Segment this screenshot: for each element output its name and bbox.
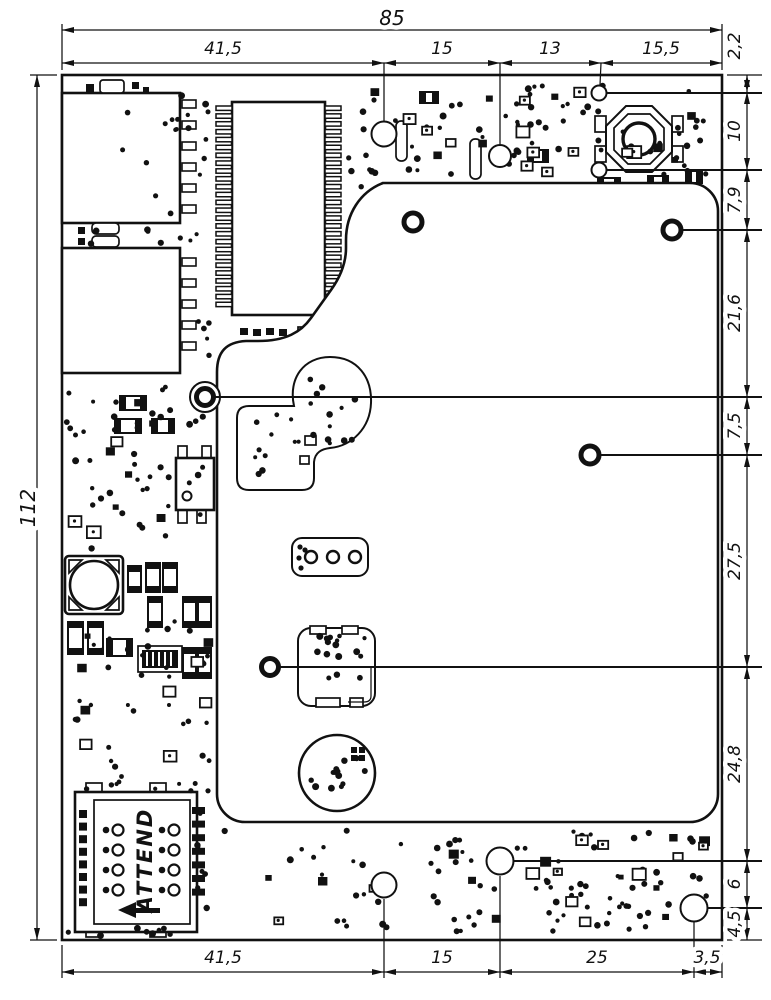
smd-pad: [662, 914, 669, 920]
passive-cap: [164, 586, 176, 591]
via-dot: [263, 453, 268, 458]
via-dot: [158, 464, 164, 470]
smd-pad: [113, 504, 119, 509]
via-dot: [326, 411, 333, 418]
smd-part: [526, 868, 539, 879]
via-dot: [289, 417, 293, 421]
via-dot: [135, 421, 140, 426]
passive-cap: [199, 649, 210, 654]
passive-cap: [542, 151, 547, 161]
dim-arrow: [744, 397, 750, 409]
ic-pin: [325, 255, 341, 259]
dim-arrow: [744, 849, 750, 861]
via-dot: [344, 828, 350, 834]
via-dot: [604, 921, 610, 927]
via-dot: [627, 927, 632, 932]
connector-pad: [182, 184, 196, 192]
via-dot: [193, 418, 199, 424]
passive-cap: [199, 598, 210, 603]
via-dot: [446, 841, 453, 848]
via-dot: [436, 868, 442, 874]
dim-right-24-8: 24,8: [725, 745, 745, 783]
via-dot: [257, 447, 262, 452]
via-dot: [665, 901, 672, 908]
dim-arrow: [62, 60, 74, 66]
via-dot: [107, 636, 111, 640]
via-dot: [696, 875, 703, 882]
smd-pad: [77, 664, 87, 673]
via-dot: [204, 137, 209, 142]
via-dot: [414, 155, 421, 162]
mounting-hole: [581, 446, 599, 464]
via-dot: [525, 85, 532, 92]
via-dot: [259, 467, 266, 474]
via-dot: [107, 490, 114, 497]
via-dot: [204, 905, 210, 911]
dim-arrow: [744, 455, 750, 467]
via-dot: [274, 412, 279, 417]
connector-pad: [182, 205, 196, 213]
via-dot: [658, 880, 663, 885]
via-dot: [324, 651, 331, 658]
passive-cap: [432, 93, 437, 102]
via-dot: [647, 149, 653, 155]
ic-pin: [216, 263, 232, 267]
ic-pin: [216, 153, 232, 157]
via-dot: [503, 114, 508, 119]
passive-cap: [199, 672, 210, 677]
via-dot: [344, 924, 349, 929]
ic-pin: [216, 287, 232, 291]
via-dot: [312, 783, 319, 790]
dim-left-total: 112: [16, 489, 40, 527]
via-dot: [308, 401, 313, 406]
smd-part: [633, 869, 646, 880]
via-dot: [201, 326, 207, 332]
via-dot: [546, 910, 552, 916]
hole: [372, 873, 397, 898]
passive-cap: [69, 623, 82, 628]
mounting-hole-ring: [197, 389, 214, 406]
passive-cap: [184, 649, 195, 654]
dim-arrow: [744, 218, 750, 230]
via-dot: [117, 780, 122, 785]
via-dot: [140, 653, 144, 657]
via-dot: [178, 235, 183, 240]
via-dot: [149, 410, 155, 416]
smd-pad: [551, 94, 558, 100]
via-dot: [569, 886, 574, 891]
via-dot: [476, 126, 483, 133]
sim-pin: [192, 834, 205, 841]
ic-pin: [216, 192, 232, 196]
via-dot: [144, 929, 150, 935]
sim-pin: [79, 810, 87, 818]
via-dot: [585, 905, 590, 910]
via-dot: [98, 495, 104, 501]
ic-pin: [216, 279, 232, 283]
via-dot: [661, 172, 666, 177]
inductor: [65, 556, 123, 614]
via-dot: [148, 474, 153, 479]
via-dot: [540, 84, 545, 89]
via-dot: [207, 758, 212, 763]
via-dot: [308, 377, 314, 383]
via-dot: [438, 126, 442, 130]
sim-dot: [159, 827, 166, 834]
via-dot: [682, 163, 687, 168]
via-dot: [623, 903, 629, 909]
via-dot: [297, 440, 301, 444]
via-dot: [170, 117, 175, 122]
via-dot: [703, 171, 708, 176]
via-dot: [109, 782, 114, 787]
connector-a: [62, 93, 180, 223]
via-dot: [99, 648, 104, 653]
dim-arrow: [744, 861, 750, 873]
hole: [489, 145, 511, 167]
dim-arrow: [34, 75, 40, 87]
via-dot: [311, 855, 316, 860]
ic-pin: [325, 185, 341, 189]
via-dot: [198, 811, 203, 816]
via-dot: [434, 845, 441, 852]
ic-pin: [216, 169, 232, 173]
via-dot: [690, 873, 697, 880]
via-dot: [319, 384, 325, 390]
sim-pin: [192, 861, 205, 868]
via-dot: [137, 522, 143, 528]
via-dot: [523, 846, 528, 851]
smd-pad: [653, 885, 659, 891]
sim-contact: [169, 885, 180, 896]
via-dot: [544, 878, 549, 883]
smd-part: [673, 853, 682, 860]
via-dot: [186, 719, 192, 725]
passive-cap: [184, 598, 195, 603]
smd-part: [622, 149, 632, 157]
via-dot: [157, 414, 164, 421]
ic-pin: [325, 192, 341, 196]
sim-pin: [79, 898, 87, 906]
via-dot: [375, 899, 381, 905]
via-dot: [253, 455, 257, 459]
via-dot: [371, 97, 376, 102]
via-dot: [269, 432, 273, 436]
ic-pin: [216, 185, 232, 189]
via-dot: [131, 451, 137, 457]
via-dot: [164, 626, 170, 632]
via-dot: [135, 478, 139, 482]
sim-contact: [169, 865, 180, 876]
via-dot: [309, 778, 314, 783]
sim-pin: [192, 821, 205, 828]
via-dot: [188, 788, 193, 793]
smd-dot: [556, 870, 559, 873]
via-dot: [141, 488, 145, 492]
sim-contact: [113, 885, 124, 896]
via-dot: [139, 672, 145, 678]
via-dot: [186, 113, 190, 117]
via-dot: [195, 885, 200, 890]
via-dot: [621, 130, 626, 135]
ic-pin: [325, 153, 341, 157]
dim-arrow: [384, 969, 396, 975]
passive-cap: [199, 621, 210, 626]
via-dot: [693, 124, 699, 130]
via-dot: [448, 171, 454, 177]
via-dot: [675, 125, 681, 131]
ic-pin: [325, 200, 341, 204]
via-dot: [200, 753, 206, 759]
ic-pin: [325, 122, 341, 126]
via-dot: [349, 437, 355, 443]
smd-pad: [371, 88, 380, 96]
ic-pin: [325, 137, 341, 141]
via-dot: [145, 486, 150, 491]
smd-dot: [408, 117, 411, 120]
smd-part: [516, 126, 529, 137]
smd-pad: [143, 87, 149, 93]
via-dot: [584, 103, 591, 110]
plated-slot: [396, 121, 407, 161]
smd-pad: [486, 96, 493, 102]
ic-pin: [325, 106, 341, 110]
smd-pad: [86, 84, 94, 92]
via-dot: [460, 850, 464, 854]
smd-dot: [531, 150, 534, 153]
passive-cap: [129, 567, 140, 572]
via-dot: [325, 436, 332, 443]
via-dot: [206, 320, 212, 326]
passive-cap: [129, 586, 140, 591]
via-dot: [77, 699, 81, 703]
sim-pin: [79, 873, 87, 881]
via-dot: [198, 173, 202, 177]
smd-pad: [253, 329, 261, 336]
via-dot: [168, 211, 174, 217]
ic-pin: [216, 302, 232, 306]
sim-contact: [113, 845, 124, 856]
via-dot: [205, 654, 210, 659]
smd-pad: [687, 112, 696, 120]
via-dot: [589, 832, 593, 836]
via-dot: [200, 414, 206, 420]
connector-pad: [182, 279, 196, 287]
via-dot: [126, 703, 130, 707]
via-dot: [591, 844, 597, 850]
dim-right-4-5: 4,5: [725, 910, 745, 937]
mounting-hole: [663, 221, 681, 239]
via-dot: [469, 858, 474, 863]
via-dot: [434, 899, 440, 905]
via-dot: [163, 385, 168, 390]
button-leg: [595, 116, 606, 132]
via-dot: [561, 913, 565, 917]
passive-cap: [184, 621, 195, 626]
dim-bottom-seg-4: 3,5: [693, 948, 720, 968]
dim-arrow: [710, 27, 722, 33]
smd-pad: [106, 447, 115, 455]
via-dot: [451, 917, 457, 923]
via-dot: [72, 457, 79, 464]
via-dot: [293, 440, 297, 444]
via-dot: [202, 101, 209, 108]
via-dot: [90, 486, 94, 490]
via-dot: [594, 922, 601, 929]
ic-pin: [325, 130, 341, 134]
via-dot: [310, 432, 316, 438]
via-dot: [93, 228, 100, 235]
smd-dot: [168, 754, 171, 757]
via-dot: [452, 837, 458, 843]
via-dot: [351, 859, 355, 863]
ic-pin: [216, 239, 232, 243]
via-dot: [577, 881, 583, 887]
hole: [681, 895, 708, 922]
ic-pin: [216, 224, 232, 228]
via-dot: [196, 319, 201, 324]
dim-arrow: [34, 928, 40, 940]
sim-dot: [103, 867, 110, 874]
via-dot: [478, 883, 483, 888]
via-dot: [187, 480, 192, 485]
via-dot: [646, 830, 652, 836]
via-dot: [362, 892, 366, 896]
smd-pad: [492, 915, 501, 923]
dim-arrow: [372, 60, 384, 66]
dim-top-total: 85: [379, 6, 404, 30]
via-dot: [161, 926, 167, 932]
sim-dot: [159, 887, 166, 894]
via-dot: [641, 881, 647, 887]
sim-dot: [159, 867, 166, 874]
sim-dot: [103, 847, 110, 854]
via-dot: [334, 672, 340, 678]
sim-pin: [79, 860, 87, 868]
via-dot: [167, 932, 172, 937]
via-dot: [132, 462, 137, 467]
via-dot: [163, 533, 168, 538]
via-dot: [342, 918, 347, 923]
via-dot: [476, 909, 482, 915]
via-dot: [406, 166, 413, 173]
dim-arrow: [710, 969, 722, 975]
via-dot: [134, 925, 141, 932]
three-pad-component: [292, 538, 368, 576]
smd-dot: [580, 838, 583, 841]
via-dot: [205, 337, 209, 341]
via-dot: [204, 721, 208, 725]
passive-cap: [184, 672, 195, 677]
via-dot: [514, 101, 519, 106]
via-dot: [553, 899, 560, 906]
smd-pad: [125, 471, 132, 477]
via-dot: [145, 628, 150, 633]
via-dot: [175, 117, 180, 122]
via-dot: [193, 781, 198, 786]
ic-pin: [325, 161, 341, 165]
dim-arrow: [694, 969, 706, 975]
via-dot: [167, 675, 171, 679]
via-dot: [328, 424, 332, 428]
smd-part: [111, 437, 122, 446]
passive-cap: [687, 172, 692, 182]
via-dot: [534, 886, 539, 891]
dim-arrow: [744, 896, 750, 908]
via-dot: [341, 758, 347, 764]
smd-part: [300, 456, 309, 464]
ic-pin: [216, 216, 232, 220]
via-dot: [144, 160, 149, 165]
via-dot: [346, 155, 351, 160]
via-dot: [172, 619, 176, 623]
smd-dot: [523, 99, 526, 102]
connector-pad: [182, 258, 196, 266]
via-dot: [167, 407, 173, 413]
via-dot: [200, 465, 205, 470]
via-dot: [97, 932, 104, 939]
smd-part: [191, 657, 203, 667]
smd-dot: [571, 150, 574, 153]
dim-arrow: [488, 60, 500, 66]
sim-contact: [169, 845, 180, 856]
smd-dot: [525, 164, 528, 167]
ic-pin: [216, 161, 232, 165]
via-dot: [202, 156, 207, 161]
ic-pin: [216, 247, 232, 251]
via-dot: [453, 859, 459, 865]
hole: [592, 163, 607, 178]
ic-pin: [216, 255, 232, 259]
via-dot: [515, 846, 520, 851]
via-dot: [145, 643, 152, 650]
ic-pin: [325, 263, 341, 267]
via-dot: [327, 635, 333, 641]
via-dot: [326, 676, 331, 681]
smd-dot: [73, 519, 76, 522]
dim-top-seg-4: 15,5: [642, 39, 680, 59]
via-dot: [620, 901, 624, 905]
smd-dot: [701, 844, 704, 847]
via-dot: [157, 928, 162, 933]
via-dot: [206, 109, 211, 114]
sim-pin: [192, 848, 205, 855]
via-dot: [561, 118, 566, 123]
smd-dot: [277, 919, 280, 922]
via-dot: [222, 828, 228, 834]
via-dot: [359, 862, 366, 869]
via-dot: [440, 113, 447, 120]
via-dot: [359, 184, 364, 189]
via-dot: [348, 168, 354, 174]
via-dot: [105, 665, 111, 671]
dim-arrow: [744, 667, 750, 679]
smd-pad: [433, 152, 441, 160]
via-dot: [167, 703, 171, 707]
via-dot: [677, 132, 682, 137]
dim-top-seg-3: 13: [539, 39, 561, 59]
via-dot: [428, 861, 433, 866]
smd-part: [100, 80, 124, 93]
smd-part: [92, 236, 119, 247]
sim-contact: [113, 825, 124, 836]
ic-pin: [325, 239, 341, 243]
passive-cap: [168, 420, 173, 432]
via-dot: [599, 148, 604, 153]
passive-cap: [696, 172, 701, 182]
sim-pin: [79, 886, 87, 894]
